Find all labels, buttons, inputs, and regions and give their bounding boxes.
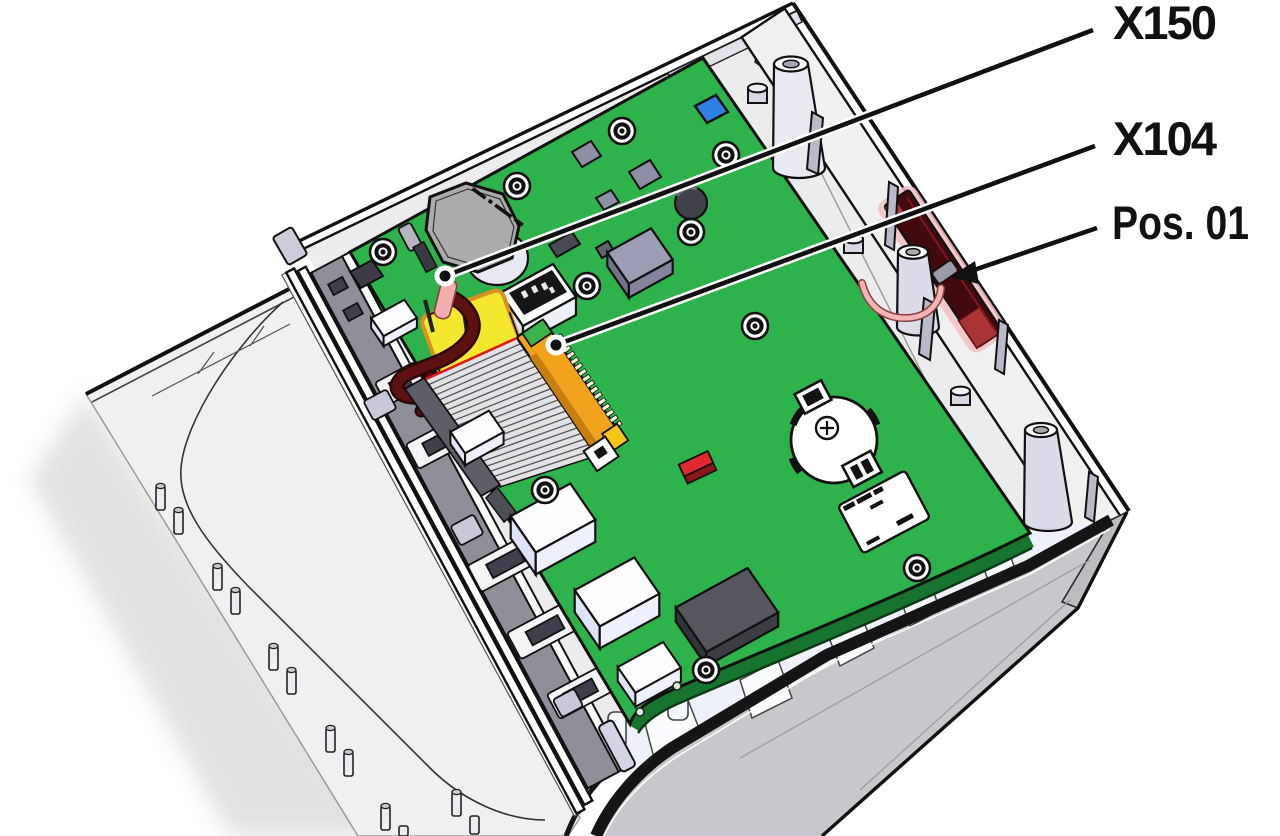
svg-text:Pos. 01: Pos. 01 <box>1112 196 1249 249</box>
svg-text:X104: X104 <box>1113 112 1217 165</box>
svg-text:X150: X150 <box>1113 0 1217 49</box>
